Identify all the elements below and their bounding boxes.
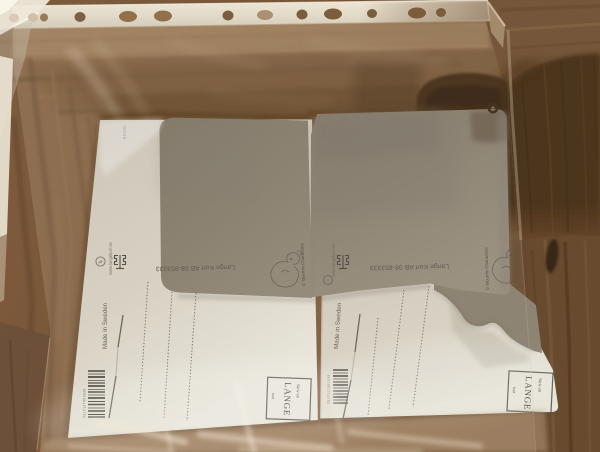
svg-text:Lange Kort AB 08-853333: Lange Kort AB 08-853333: [369, 262, 449, 270]
svg-text:Made in Sweden: Made in Sweden: [102, 302, 109, 349]
svg-text:www.langekort.se: www.langekort.se: [108, 242, 113, 275]
svg-text:Lange Kort AB 08-853333: Lange Kort AB 08-853333: [155, 263, 235, 271]
svg-text:60105: 60105: [321, 125, 326, 139]
svg-text:www.langekort.se: www.langekort.se: [331, 244, 336, 277]
